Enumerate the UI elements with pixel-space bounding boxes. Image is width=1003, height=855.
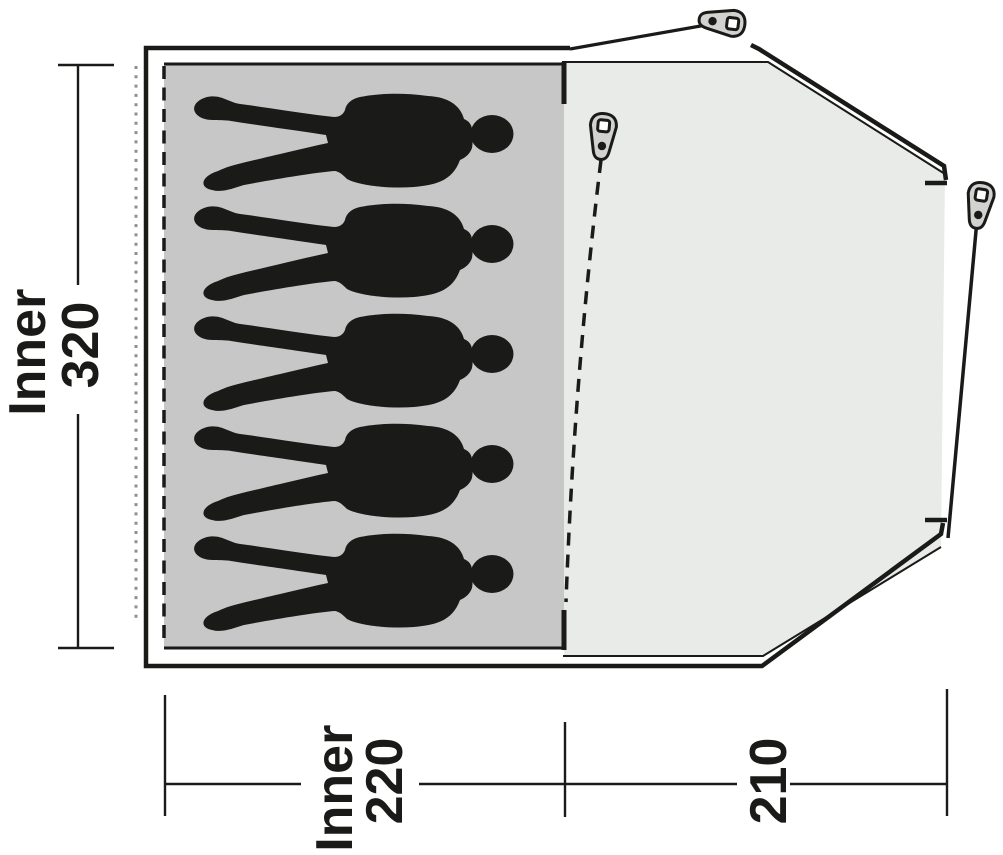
guy-line-right [948,220,977,538]
label-line: Inner [0,289,57,416]
dimension-label-porch-width: 210 [740,738,798,825]
porch-area [564,62,945,656]
guy-line-top [570,24,712,49]
label-line: 220 [356,738,414,825]
label-line: 320 [52,302,110,389]
tent-peg-icon [698,6,747,37]
label-line: 210 [740,738,798,825]
dimension-label-inner-height: Inner 320 [0,274,110,416]
dimension-label-inner-width: Inner 220 [306,710,414,852]
tent-peg-icon [963,181,996,231]
tent-floorplan-diagram: Inner 320 Inner 220 210 [0,0,1003,855]
tent-floorplan-page: Inner 320 Inner 220 210 [0,0,1003,855]
